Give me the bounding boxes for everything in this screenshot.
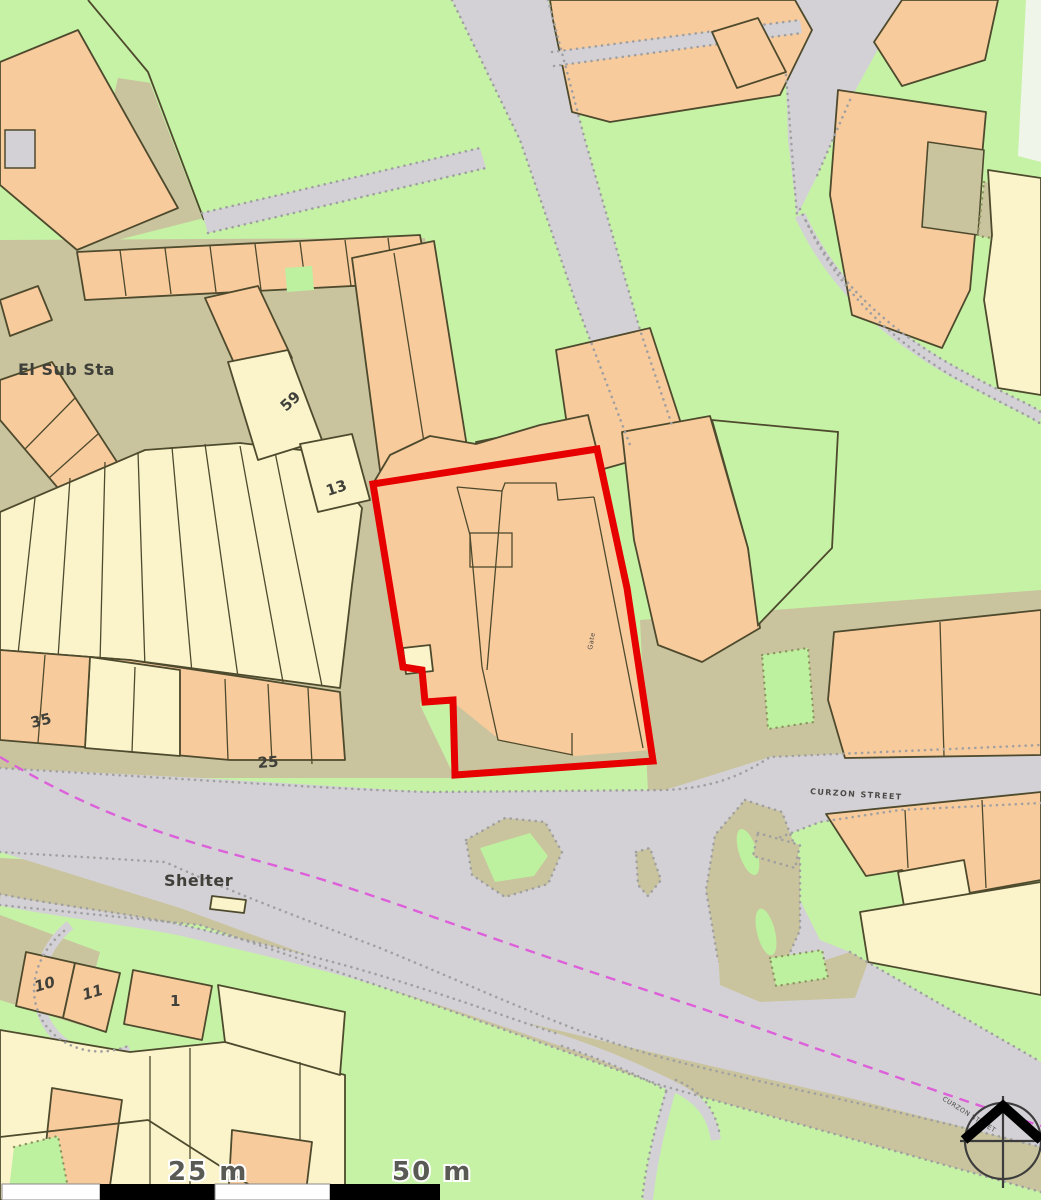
map-canvas[interactable]: El Sub Sta 59 13 35 25 Shelter 10 11 1 C… (0, 0, 1041, 1200)
scale-label-25m: 25 m (168, 1157, 248, 1187)
os-map[interactable]: El Sub Sta 59 13 35 25 Shelter 10 11 1 C… (0, 0, 1041, 1200)
label-shelter: Shelter (164, 871, 233, 890)
label-el-sub-sta: El Sub Sta (18, 360, 115, 379)
label-25: 25 (257, 753, 279, 772)
label-1: 1 (170, 992, 180, 1010)
scale-label-50m: 50 m (392, 1157, 472, 1187)
